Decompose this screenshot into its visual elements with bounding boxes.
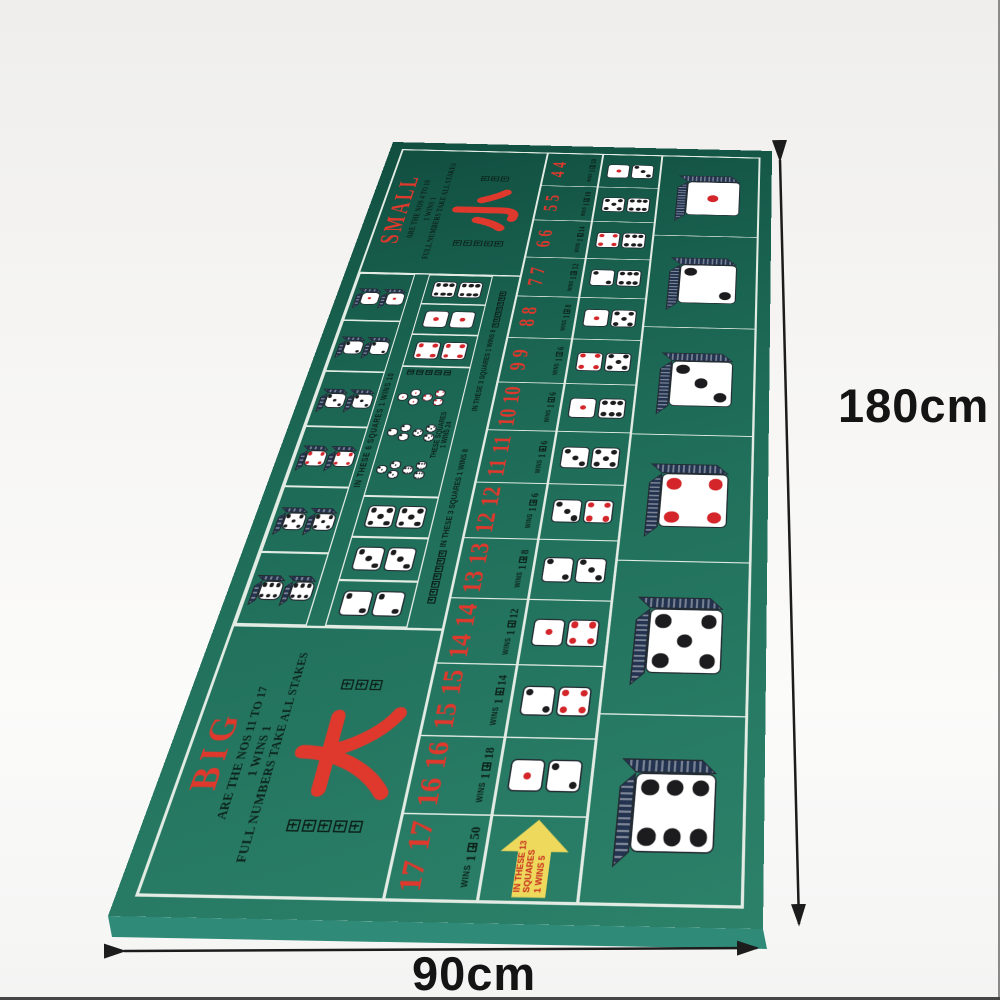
die-face-3 bbox=[559, 447, 590, 469]
single-die-bet-4 bbox=[618, 434, 752, 564]
die-face-5 bbox=[590, 447, 621, 469]
hanzi-glyph bbox=[432, 573, 442, 580]
single-die-bet-1 bbox=[654, 156, 758, 237]
die-3d-face-6 bbox=[613, 758, 717, 854]
number-value: 1010 bbox=[494, 386, 526, 426]
die-face-4 bbox=[582, 500, 614, 524]
die-3d-face-3 bbox=[656, 352, 733, 407]
die-face-2 bbox=[370, 591, 406, 617]
pair-bet-33 bbox=[338, 537, 429, 582]
hanzi-zhong-glyph bbox=[589, 165, 595, 169]
die-face-2 bbox=[519, 686, 557, 716]
hanzi-glyph bbox=[492, 317, 500, 322]
pair-bet-44 bbox=[402, 334, 479, 368]
die-3d-face-3 bbox=[343, 389, 375, 409]
number-odds: WINS16 bbox=[541, 392, 558, 422]
hanzi-zhong-glyph bbox=[563, 309, 570, 314]
single-die-bet-6 bbox=[579, 715, 745, 906]
combo-bet-26 bbox=[580, 258, 649, 299]
number-odds: WINS150 bbox=[585, 159, 599, 182]
hanzi-zhong-glyph bbox=[529, 499, 538, 505]
width-dimension-label: 90cm bbox=[412, 946, 536, 1000]
hanzi-glyph bbox=[348, 821, 363, 833]
hanzi-glyph bbox=[406, 369, 414, 374]
hanzi-glyph bbox=[428, 589, 438, 596]
height-dimension-line bbox=[780, 160, 799, 924]
hanzi-glyph bbox=[463, 240, 473, 246]
number-odds: WINS112 bbox=[565, 263, 581, 291]
hanzi-glyph bbox=[494, 241, 504, 247]
combo-bet-14 bbox=[518, 600, 610, 667]
hanzi-glyph bbox=[435, 558, 444, 565]
hanzi-glyph bbox=[332, 820, 348, 832]
die-face-4 bbox=[575, 352, 604, 371]
die-3d-face-4 bbox=[324, 446, 358, 467]
die-face-1 bbox=[606, 164, 630, 178]
number-odds: WINS16 bbox=[532, 441, 550, 474]
hanzi-glyph bbox=[497, 297, 505, 302]
hanzi-glyph bbox=[483, 241, 493, 247]
number-value: 1111 bbox=[483, 435, 516, 477]
die-face-4 bbox=[412, 341, 442, 359]
number-odds: WINS18 bbox=[558, 304, 574, 331]
combo-bet-34 bbox=[540, 484, 624, 542]
die-face-2 bbox=[397, 433, 410, 441]
die-face-5 bbox=[610, 310, 638, 328]
small-bet-area: SMALL ARE THE NOS 4 TO 10 1 WINS 1 FULL … bbox=[360, 150, 547, 277]
small-hanzi-right bbox=[481, 176, 510, 181]
hanzi-zhong-glyph bbox=[481, 762, 491, 771]
die-face-3 bbox=[574, 557, 608, 583]
die-face-6 bbox=[456, 282, 484, 298]
hanzi-xiao-icon bbox=[442, 186, 529, 235]
number-odds: WINS16 bbox=[550, 347, 566, 375]
hanzi-zhong-glyph bbox=[583, 198, 590, 202]
die-face-1 bbox=[567, 398, 597, 419]
hanzi-zhong-glyph bbox=[467, 843, 478, 852]
hanzi-zhong-glyph bbox=[570, 271, 577, 275]
die-face-1 bbox=[421, 311, 450, 328]
die-face-5 bbox=[394, 506, 428, 529]
die-face-1 bbox=[448, 311, 477, 328]
die-3d-face-1 bbox=[675, 175, 741, 216]
combo-bet-16 bbox=[558, 384, 635, 434]
die-face-1 bbox=[507, 759, 547, 792]
combo-bet-56 bbox=[593, 187, 658, 223]
sic-bo-mat: BIG ARE THE NOS 11 TO 17 1 WINS 1 FULL N… bbox=[108, 142, 772, 929]
payout-arrow-cell: IN THESE 13SQUARES1 WINS 5 bbox=[479, 816, 586, 902]
product-photo: BIG ARE THE NOS 11 TO 17 1 WINS 1 FULL N… bbox=[0, 0, 1000, 1000]
number-bet-14: 1414WINS112 bbox=[437, 598, 527, 665]
hanzi-glyph bbox=[369, 680, 383, 690]
number-value: 1616 bbox=[412, 741, 456, 807]
number-bet-11: 1111WINS16 bbox=[477, 431, 556, 484]
number-bet-13: 1313WINS18 bbox=[451, 538, 537, 600]
die-face-3 bbox=[386, 470, 400, 479]
die-face-5 bbox=[411, 429, 424, 437]
number-bet-12: 1212WINS16 bbox=[464, 482, 546, 539]
pair-bet-66 bbox=[420, 275, 493, 305]
combo-bet-12 bbox=[493, 737, 594, 817]
die-face-4 bbox=[565, 619, 600, 647]
big-hanzi-right bbox=[340, 679, 383, 690]
hanzi-zhong-glyph bbox=[495, 688, 505, 696]
number-odds: WINS16 bbox=[522, 493, 541, 528]
hanzi-glyph bbox=[317, 820, 333, 832]
number-bet-17: 1717WINS150 bbox=[385, 814, 490, 900]
combo-bet-13 bbox=[599, 155, 662, 189]
hanzi-glyph bbox=[416, 370, 424, 375]
die-3d-face-5 bbox=[631, 597, 724, 675]
number-odds: WINS18 bbox=[511, 550, 531, 588]
number-value: 77 bbox=[524, 267, 549, 286]
die-face-2 bbox=[399, 424, 412, 432]
hanzi-zhong-glyph bbox=[556, 352, 564, 357]
pair-bet-22 bbox=[325, 580, 419, 628]
number-value: 55 bbox=[540, 195, 563, 212]
die-face-6 bbox=[626, 198, 651, 213]
number-bet-5: 55WINS118 bbox=[534, 186, 597, 222]
die-3d-face-5 bbox=[303, 508, 339, 531]
die-face-1 bbox=[582, 309, 610, 327]
die-face-4 bbox=[595, 232, 621, 248]
single-die-bet-3 bbox=[632, 327, 754, 437]
number-odds: WINS118 bbox=[579, 192, 593, 217]
number-bet-4: 44WINS150 bbox=[542, 154, 603, 188]
combo-bet-24 bbox=[507, 666, 603, 739]
die-face-3 bbox=[550, 499, 583, 523]
pairs-label-cn bbox=[426, 550, 446, 603]
hanzi-glyph bbox=[437, 550, 446, 557]
number-odds: WINS114 bbox=[572, 226, 587, 252]
pair-bet-55 bbox=[351, 496, 439, 539]
combo-bet-23 bbox=[530, 540, 618, 602]
hanzi-zhong-glyph bbox=[577, 233, 584, 237]
hanzi-zhong-glyph bbox=[519, 556, 528, 563]
die-3d-face-1 bbox=[378, 289, 407, 306]
die-face-1 bbox=[407, 398, 420, 406]
hanzi-glyph bbox=[425, 370, 433, 375]
hanzi-glyph bbox=[473, 241, 483, 247]
die-face-3 bbox=[631, 165, 655, 179]
die-face-4 bbox=[421, 394, 434, 402]
number-bet-9: 99WINS16 bbox=[499, 338, 571, 384]
number-bet-7: 77WINS112 bbox=[517, 257, 584, 297]
number-value: 1313 bbox=[458, 542, 495, 593]
number-value: 44 bbox=[548, 162, 571, 178]
hanzi-glyph bbox=[434, 565, 443, 572]
hanzi-glyph bbox=[481, 176, 490, 181]
die-face-5 bbox=[363, 505, 397, 528]
die-face-6 bbox=[401, 466, 414, 475]
yellow-arrow-icon: IN THESE 13SQUARES1 WINS 5 bbox=[489, 819, 576, 898]
die-face-2 bbox=[541, 556, 575, 582]
hanzi-da-icon bbox=[273, 702, 410, 807]
die-3d-face-2 bbox=[361, 337, 391, 355]
number-bet-10: 1010WINS16 bbox=[488, 383, 563, 432]
die-face-3 bbox=[382, 547, 417, 571]
hanzi-glyph bbox=[452, 240, 462, 246]
number-bet-16: 1616WINS118 bbox=[404, 736, 504, 816]
hanzi-glyph bbox=[494, 312, 502, 317]
hanzi-glyph bbox=[500, 177, 509, 182]
number-value: 99 bbox=[506, 349, 533, 371]
single-die-bet-5 bbox=[600, 561, 748, 718]
number-value: 1212 bbox=[471, 486, 506, 533]
die-face-1 bbox=[409, 389, 422, 397]
hanzi-zhong-glyph bbox=[538, 446, 546, 452]
number-value: 1515 bbox=[428, 669, 469, 729]
small-hanzi-zone bbox=[439, 176, 532, 247]
die-face-2 bbox=[589, 269, 616, 286]
number-value: 88 bbox=[515, 307, 541, 327]
combo-bet-45 bbox=[566, 339, 641, 385]
die-face-1 bbox=[530, 618, 566, 646]
pair-bet-11 bbox=[411, 304, 485, 336]
die-face-6 bbox=[430, 281, 458, 297]
arrow-text: IN THESE 13SQUARES1 WINS 5 bbox=[489, 819, 576, 898]
hanzi-glyph bbox=[340, 679, 354, 689]
combo-bet-46 bbox=[587, 222, 654, 260]
pairs-label-cn-2 bbox=[491, 291, 506, 327]
die-3d-face-2 bbox=[666, 257, 737, 304]
die-face-3 bbox=[351, 546, 387, 570]
any-triple-cn bbox=[406, 369, 451, 375]
height-dimension-label: 180cm bbox=[838, 378, 989, 433]
hanzi-glyph bbox=[355, 680, 369, 690]
hanzi-glyph bbox=[495, 307, 503, 312]
hanzi-zhong-glyph bbox=[507, 621, 516, 628]
number-bet-8: 88WINS18 bbox=[508, 296, 578, 339]
die-face-2 bbox=[337, 590, 374, 616]
die-3d-face-4 bbox=[645, 464, 729, 529]
single-die-bet-2 bbox=[644, 235, 757, 329]
number-bet-15: 1515WINS114 bbox=[421, 664, 516, 737]
die-face-6 bbox=[615, 270, 642, 287]
hanzi-glyph bbox=[491, 323, 499, 328]
hanzi-zhong-glyph bbox=[547, 397, 555, 402]
hanzi-glyph bbox=[490, 176, 499, 181]
die-face-6 bbox=[621, 233, 647, 249]
number-bet-6: 66WINS114 bbox=[526, 220, 591, 258]
number-value: 66 bbox=[532, 230, 556, 248]
die-face-6 bbox=[597, 398, 627, 419]
die-face-3 bbox=[389, 461, 403, 470]
small-hanzi-left bbox=[452, 240, 503, 247]
hanzi-glyph bbox=[285, 819, 301, 831]
number-value: 1414 bbox=[444, 603, 483, 658]
die-face-2 bbox=[545, 760, 584, 793]
die-face-5 bbox=[604, 353, 633, 372]
hanzi-glyph bbox=[426, 597, 436, 604]
hanzi-glyph bbox=[301, 820, 317, 832]
hanzi-glyph bbox=[496, 302, 504, 307]
hanzi-glyph bbox=[430, 581, 440, 588]
die-face-4 bbox=[555, 686, 592, 716]
die-face-4 bbox=[439, 342, 468, 360]
combo-bet-35 bbox=[549, 432, 630, 485]
combo-bet-15 bbox=[573, 298, 645, 341]
hanzi-glyph bbox=[434, 370, 442, 375]
die-face-5 bbox=[601, 197, 626, 212]
hanzi-glyph bbox=[499, 291, 506, 296]
hanzi-glyph bbox=[443, 370, 451, 375]
die-3d-face-6 bbox=[280, 576, 318, 601]
number-value: 1717 bbox=[393, 820, 439, 892]
big-hanzi-left bbox=[285, 819, 363, 833]
printed-betting-layout: BIG ARE THE NOS 11 TO 17 1 WINS 1 FULL N… bbox=[135, 149, 761, 909]
